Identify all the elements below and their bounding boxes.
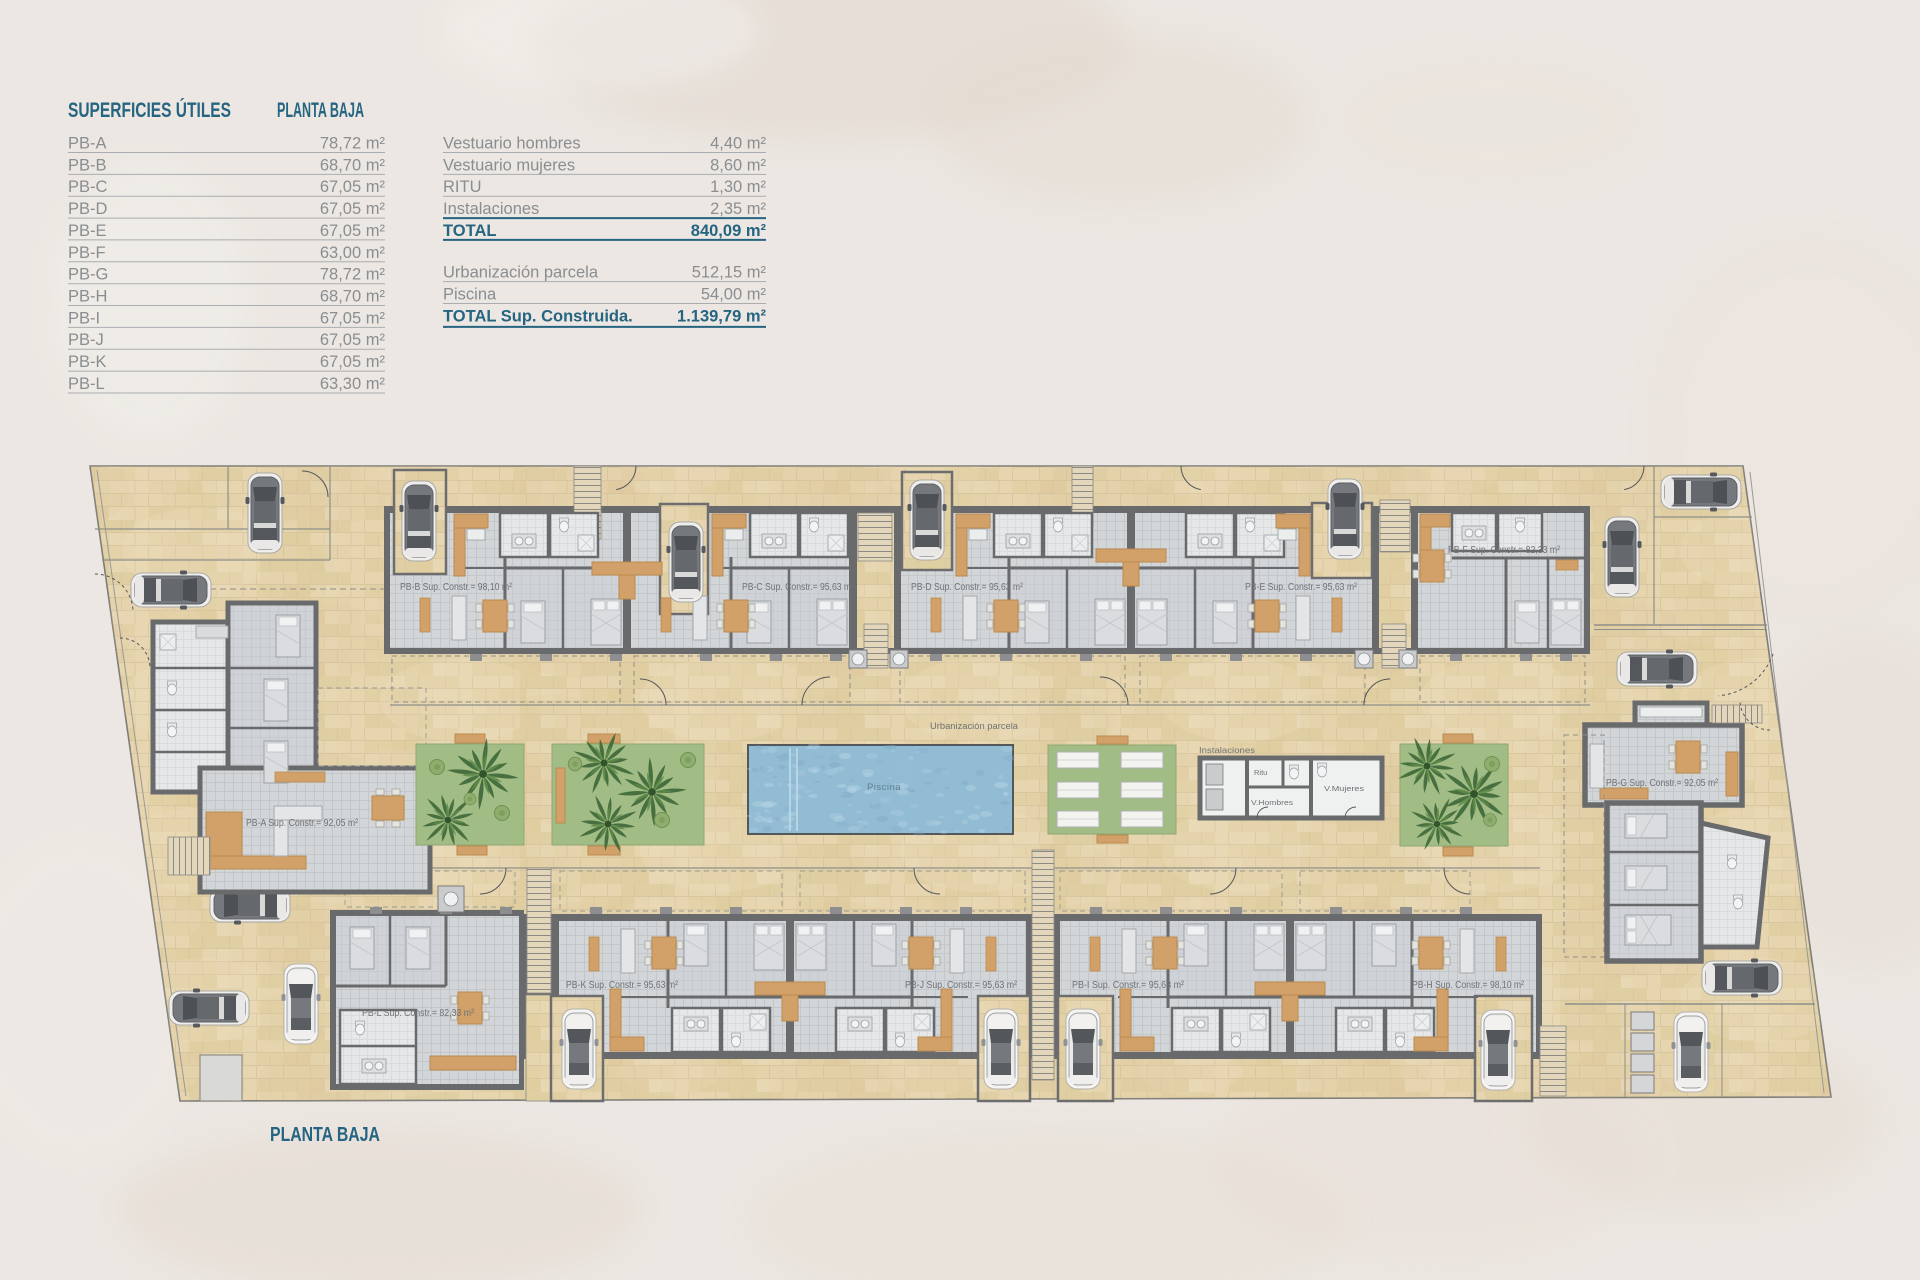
svg-text:PB-H: PB-H [68,288,107,306]
svg-text:Piscina: Piscina [443,286,497,304]
svg-text:Instalaciones: Instalaciones [443,200,539,218]
svg-text:PB-D Sup. Constr.= 95,63 m²: PB-D Sup. Constr.= 95,63 m² [911,582,1024,593]
svg-text:78,72 m²: 78,72 m² [320,266,386,284]
svg-text:PB-F: PB-F [68,244,106,262]
svg-text:840,09 m²: 840,09 m² [691,222,767,240]
svg-text:Instalaciones: Instalaciones [1199,746,1255,755]
svg-text:PB-F Sup. Constr.= 82,33 m²: PB-F Sup. Constr.= 82,33 m² [1448,545,1561,556]
svg-text:PB-K: PB-K [68,353,107,371]
svg-text:67,05 m²: 67,05 m² [320,200,386,218]
svg-text:PB-I Sup. Constr.= 95,63 m²: PB-I Sup. Constr.= 95,63 m² [1072,980,1185,991]
svg-text:2,35 m²: 2,35 m² [710,200,766,218]
svg-text:PB-E: PB-E [68,222,107,240]
svg-text:Urbanización parcela: Urbanización parcela [443,264,599,282]
svg-text:PB-H Sup. Constr.= 98,10 m²: PB-H Sup. Constr.= 98,10 m² [1412,980,1525,991]
svg-text:512,15 m²: 512,15 m² [692,264,767,282]
svg-text:63,30 m²: 63,30 m² [320,375,386,393]
svg-text:PB-A Sup. Constr.= 92,05 m²: PB-A Sup. Constr.= 92,05 m² [246,818,359,829]
svg-text:67,05 m²: 67,05 m² [320,331,386,349]
svg-text:4,40 m²: 4,40 m² [710,135,766,153]
svg-text:PB-A: PB-A [68,135,107,153]
svg-text:54,00 m²: 54,00 m² [701,286,767,304]
svg-text:Ritu: Ritu [1254,768,1267,777]
svg-text:PB-K Sup. Constr.= 95,63 m²: PB-K Sup. Constr.= 95,63 m² [566,980,679,991]
svg-text:67,05 m²: 67,05 m² [320,309,386,327]
svg-text:PLANTA BAJA: PLANTA BAJA [277,99,364,122]
svg-text:68,70 m²: 68,70 m² [320,288,386,306]
svg-text:RITU: RITU [443,178,482,196]
svg-text:V.Hombres: V.Hombres [1251,798,1293,807]
svg-text:68,70 m²: 68,70 m² [320,156,386,174]
svg-text:PB-J: PB-J [68,331,104,349]
svg-text:PB-J Sup. Constr.= 95,63 m²: PB-J Sup. Constr.= 95,63 m² [905,980,1018,991]
svg-text:TOTAL: TOTAL [443,222,496,240]
svg-text:PB-B: PB-B [68,156,107,174]
svg-text:PB-E Sup. Constr.= 95,63 m²: PB-E Sup. Constr.= 95,63 m² [1245,582,1358,593]
svg-text:V.Mujeres: V.Mujeres [1324,784,1364,793]
svg-text:67,05 m²: 67,05 m² [320,353,386,371]
svg-text:PB-I: PB-I [68,309,100,327]
svg-text:Vestuario hombres: Vestuario hombres [443,135,581,153]
svg-text:67,05 m²: 67,05 m² [320,222,386,240]
svg-text:PB-G Sup. Constr.= 92,05 m²: PB-G Sup. Constr.= 92,05 m² [1606,778,1719,789]
svg-text:PB-L Sup. Constr.= 82,33 m²: PB-L Sup. Constr.= 82,33 m² [362,1008,475,1019]
svg-text:Urbanización parcela: Urbanización parcela [930,721,1019,732]
svg-text:Piscina: Piscina [867,782,901,793]
svg-text:PB-C Sup. Constr.= 95,63 m²: PB-C Sup. Constr.= 95,63 m² [742,582,855,593]
svg-text:78,72 m²: 78,72 m² [320,135,386,153]
svg-text:PB-L: PB-L [68,375,105,393]
svg-text:PLANTA BAJA: PLANTA BAJA [270,1124,380,1146]
svg-text:8,60 m²: 8,60 m² [710,156,766,174]
svg-text:1,30 m²: 1,30 m² [710,178,766,196]
svg-text:PB-D: PB-D [68,200,108,218]
svg-text:SUPERFICIES ÚTILES: SUPERFICIES ÚTILES [68,98,231,122]
svg-text:PB-G: PB-G [68,266,108,284]
svg-text:PB-B Sup. Constr.= 98,10 m²: PB-B Sup. Constr.= 98,10 m² [400,582,513,593]
svg-text:1.139,79 m²: 1.139,79 m² [677,307,766,325]
svg-text:Vestuario mujeres: Vestuario mujeres [443,156,575,174]
svg-text:PB-C: PB-C [68,178,108,196]
svg-text:67,05 m²: 67,05 m² [320,178,386,196]
svg-text:63,00 m²: 63,00 m² [320,244,386,262]
svg-text:TOTAL Sup. Construida.: TOTAL Sup. Construida. [443,307,633,325]
